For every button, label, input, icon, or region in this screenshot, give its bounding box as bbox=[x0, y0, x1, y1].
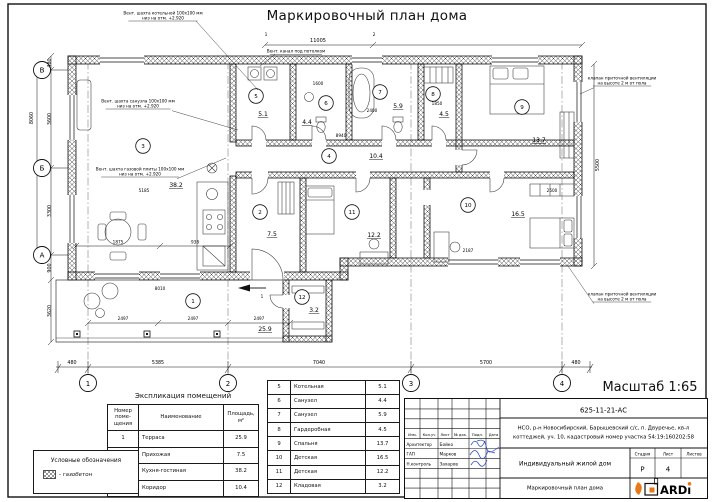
title-block: 625-11-21-АСНСО, р-н Новосибирский, Бары… bbox=[404, 398, 708, 499]
table-header-row: Номер поме- щенияНаименованиеПлощадь, м² bbox=[108, 405, 259, 431]
dimension-label: 5185 bbox=[139, 188, 150, 193]
dimension-label: 8010 bbox=[155, 286, 166, 291]
dimension-label: 2187 bbox=[463, 248, 474, 253]
dimension-label: 1850 bbox=[432, 101, 443, 106]
dimension-label: 3300 bbox=[47, 205, 53, 217]
logo-window-icon bbox=[650, 488, 655, 493]
annotation-text: на высоте 2 м от пола bbox=[598, 80, 647, 85]
cell-room-name: Спальня bbox=[291, 437, 366, 451]
cell-room-area: 10.4 bbox=[224, 480, 259, 497]
dimension-label: 3600 bbox=[47, 113, 53, 125]
cell-room-name: Кладовая bbox=[291, 479, 366, 493]
table-row: 12Кладовая3.2 bbox=[268, 479, 400, 493]
dimension-label: 480 bbox=[571, 360, 580, 366]
cell-room-area: 4.4 bbox=[366, 395, 400, 409]
dimension-label: 11005 bbox=[310, 38, 326, 44]
cell-room-name: Кухня-гостиная bbox=[139, 464, 224, 481]
doc-number: 625-11-21-АС bbox=[580, 407, 627, 415]
dimension-label: 1 bbox=[261, 294, 264, 299]
room-area: 38.2 bbox=[169, 182, 183, 189]
page-title: Маркировочный план дома bbox=[247, 8, 487, 24]
cell-room-number: 6 bbox=[268, 395, 291, 409]
cell-room-area: 4.5 bbox=[366, 423, 400, 437]
logo-dot-icon bbox=[688, 482, 692, 486]
dimension-label: 3620 bbox=[47, 305, 53, 317]
legend-box: Условные обозначения - газобетон bbox=[33, 450, 139, 494]
signer-name: Марков bbox=[440, 452, 457, 458]
dimension-label: 900 bbox=[47, 263, 53, 272]
cell-room-number: 11 bbox=[268, 465, 291, 479]
room-area: 4.5 bbox=[439, 111, 449, 118]
sheets-label: Листов bbox=[686, 452, 702, 457]
axis-label: А bbox=[40, 252, 45, 260]
dimension-label: 2 bbox=[373, 32, 376, 38]
col-room-number: Номер поме- щения bbox=[108, 405, 139, 431]
cell-room-name: Терраса bbox=[139, 431, 224, 448]
annotation-text: низ на отм. +2.920 bbox=[119, 171, 161, 176]
table-row: 1Терраса25.9 bbox=[108, 431, 259, 448]
room-number: 10 bbox=[464, 203, 472, 209]
annotation-text: низ на отм. +2.920 bbox=[117, 103, 159, 108]
cell-room-name: Детская bbox=[291, 465, 366, 479]
room-number: 6 bbox=[324, 101, 328, 107]
dimension-label: 5500 bbox=[595, 159, 601, 171]
cell-room-name: Коридор bbox=[139, 480, 224, 497]
revision-header: Дата bbox=[489, 433, 499, 437]
axis-label: 1 bbox=[86, 380, 90, 388]
room-area: 4.4 bbox=[302, 119, 312, 126]
revision-header: Изм. bbox=[408, 433, 417, 437]
project-address: коттеджей, уч. 10, кадастровый номер уча… bbox=[513, 434, 695, 441]
project-address: НСО, р-н Новосибирский, Барышевский с/с,… bbox=[518, 425, 690, 432]
room-number: 12 bbox=[298, 295, 305, 301]
signer-role: Н.контроль bbox=[407, 462, 432, 467]
room-area: 13.7 bbox=[532, 137, 546, 144]
room-area: 3.2 bbox=[309, 307, 319, 314]
stage-label: Стадия bbox=[635, 452, 651, 457]
signer-role: Архитектор bbox=[407, 442, 433, 447]
signer-name: Захаров bbox=[440, 462, 459, 468]
cell-room-number: 1 bbox=[108, 431, 139, 448]
room-area: 10.4 bbox=[369, 153, 383, 160]
legend-title: Условные обозначения bbox=[34, 458, 138, 464]
signer-role: ГАП bbox=[407, 452, 415, 457]
cell-room-name: Санузел bbox=[291, 395, 366, 409]
sheet-number: 4 bbox=[666, 466, 671, 474]
annotation-leader bbox=[196, 21, 258, 90]
cell-room-number: 5 bbox=[268, 381, 291, 395]
dimension-label: 1 bbox=[265, 32, 268, 38]
cell-room-area: 12.2 bbox=[366, 465, 400, 479]
explication-title: Экспликация помещений bbox=[107, 391, 259, 400]
project-name: Индивидуальный жилой дом bbox=[519, 461, 611, 468]
annotation-text: Вент. канал под потолком bbox=[267, 49, 325, 54]
dimension-label: 5385 bbox=[152, 360, 164, 366]
dimension-label: 7040 bbox=[313, 360, 325, 366]
cell-room-area: 16.5 bbox=[366, 451, 400, 465]
axis-label: 4 bbox=[560, 380, 565, 388]
col-room-name: Наименование bbox=[139, 405, 224, 431]
dimension-label: 1600 bbox=[313, 81, 324, 86]
cell-room-area: 3.2 bbox=[366, 479, 400, 493]
room-number: 11 bbox=[348, 210, 356, 216]
revision-header: № док. bbox=[454, 433, 467, 437]
room-area: 25.9 bbox=[258, 326, 272, 333]
table-row: 5Котельная5.1 bbox=[268, 381, 400, 395]
dimension-label: 8940 bbox=[336, 133, 347, 138]
room-area: 5.9 bbox=[393, 103, 403, 110]
annotation-text: на высоте 2 м от пола bbox=[598, 296, 647, 301]
dimension-label: 938 bbox=[191, 240, 199, 245]
cell-room-area: 25.9 bbox=[224, 431, 259, 448]
cell-room-area: 7.5 bbox=[224, 447, 259, 464]
title-block-grid: 625-11-21-АСНСО, р-н Новосибирский, Бары… bbox=[405, 399, 707, 498]
room-number: 8 bbox=[431, 92, 435, 98]
cell-room-number: 8 bbox=[268, 423, 291, 437]
cell-room-number: 7 bbox=[268, 409, 291, 423]
room-number: 5 bbox=[254, 94, 258, 100]
cell-room-area: 5.9 bbox=[366, 409, 400, 423]
logo-text: ARDı bbox=[660, 483, 691, 497]
cell-room-area: 38.2 bbox=[224, 464, 259, 481]
room-area: 7.5 bbox=[267, 231, 277, 238]
cell-room-number: 10 bbox=[268, 451, 291, 465]
annotation-leader bbox=[177, 158, 226, 179]
revision-header: Подп. bbox=[472, 433, 483, 437]
signature-scribble bbox=[471, 460, 487, 466]
cell-room-name: Детская bbox=[291, 451, 366, 465]
hatch-swatch-icon bbox=[43, 470, 56, 479]
entrance-arrow bbox=[238, 285, 266, 292]
axis-label: 3 bbox=[409, 380, 413, 388]
table-row: 9Спальня13.7 bbox=[268, 437, 400, 451]
cell-room-name: Санузел bbox=[291, 409, 366, 423]
annotation-leader bbox=[568, 266, 594, 304]
explication-table-right: 5Котельная5.16Санузел4.47Санузел5.98Гард… bbox=[267, 380, 400, 494]
room-area: 5.1 bbox=[258, 111, 268, 118]
logo-leaf-icon bbox=[635, 482, 642, 495]
dimension-label: 480 bbox=[47, 58, 53, 67]
revision-header: Кол.уч bbox=[423, 433, 436, 437]
sheet-label: Лист bbox=[663, 452, 674, 457]
table-row: 6Санузел4.4 bbox=[268, 395, 400, 409]
signature-scribble bbox=[471, 441, 485, 446]
room-number: 3 bbox=[141, 144, 145, 150]
room-number: 7 bbox=[378, 90, 382, 96]
dimension-label: 480 bbox=[67, 360, 76, 366]
signer-name: Бойко bbox=[440, 441, 454, 448]
room-area: 16.5 bbox=[511, 211, 525, 218]
dimension-lines bbox=[34, 42, 597, 373]
cell-room-number: 9 bbox=[268, 437, 291, 451]
cell-room-name: Прихожая bbox=[139, 447, 224, 464]
cell-room-area: 13.7 bbox=[366, 437, 400, 451]
axis-label: В bbox=[40, 67, 45, 75]
revision-header: Лист bbox=[440, 433, 450, 437]
dimension-label: 5700 bbox=[480, 360, 492, 366]
axis-label: Б bbox=[40, 165, 45, 173]
cell-room-number: 12 bbox=[268, 479, 291, 493]
dimension-label: 2500 bbox=[547, 188, 558, 193]
dimension-label: 2497 bbox=[118, 316, 129, 321]
room-number: 9 bbox=[520, 105, 524, 111]
room-number: 2 bbox=[258, 210, 262, 216]
room-number: 4 bbox=[327, 154, 331, 160]
sheet-title: Маркировочный план дома bbox=[527, 485, 603, 492]
table-row: 8Гардеробная4.5 bbox=[268, 423, 400, 437]
cell-room-area: 5.1 bbox=[366, 381, 400, 395]
axis-label: 2 bbox=[226, 380, 230, 388]
dimension-label: 2400 bbox=[367, 108, 378, 113]
drawing-sheet: { "page": { "title": "Маркировочный план… bbox=[0, 0, 712, 502]
legend-item-label: - газобетон bbox=[59, 472, 92, 478]
cell-room-name: Гардеробная bbox=[291, 423, 366, 437]
table-row: 7Санузел5.9 bbox=[268, 409, 400, 423]
table-row: 10Детская16.5 bbox=[268, 451, 400, 465]
scale-label: Масштаб 1:65 bbox=[596, 380, 704, 395]
dimension-label: 8060 bbox=[29, 112, 35, 124]
room-area: 12.2 bbox=[367, 232, 381, 239]
dimension-label: 1875 bbox=[113, 240, 124, 245]
room-number: 1 bbox=[191, 299, 195, 305]
dimension-label: 2497 bbox=[188, 316, 199, 321]
stage-value: Р bbox=[640, 466, 644, 474]
col-room-area: Площадь, м² bbox=[224, 405, 259, 431]
table-row: 11Детская12.2 bbox=[268, 465, 400, 479]
cell-room-name: Котельная bbox=[291, 381, 366, 395]
dimension-label: 2497 bbox=[254, 316, 265, 321]
terrace bbox=[56, 280, 332, 342]
annotation-text: низ на отм. +2.920 bbox=[142, 15, 184, 20]
